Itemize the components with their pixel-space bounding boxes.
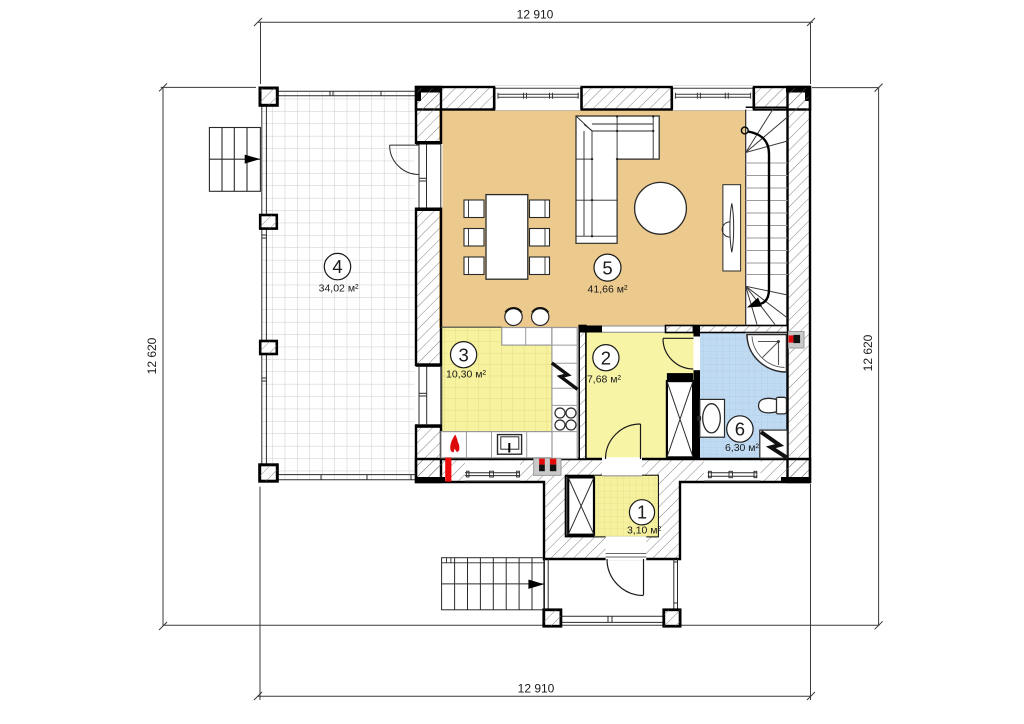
svg-text:7,68 м²: 7,68 м² [587,374,622,386]
svg-text:2: 2 [601,347,611,368]
svg-text:34,02 м²: 34,02 м² [319,283,359,295]
svg-text:12 620: 12 620 [861,334,875,371]
svg-text:1: 1 [637,503,647,523]
svg-text:12 910: 12 910 [518,682,555,696]
svg-text:12 910: 12 910 [517,8,554,22]
svg-text:10,30 м²: 10,30 м² [446,369,486,381]
svg-text:3,10 м²: 3,10 м² [627,525,662,537]
svg-text:6: 6 [735,419,745,440]
svg-text:5: 5 [602,257,612,278]
svg-text:41,66 м²: 41,66 м² [588,284,628,296]
svg-text:6,30 м²: 6,30 м² [725,442,760,454]
svg-text:3: 3 [458,344,468,365]
svg-text:4: 4 [332,256,342,277]
svg-text:12 620: 12 620 [145,337,159,374]
